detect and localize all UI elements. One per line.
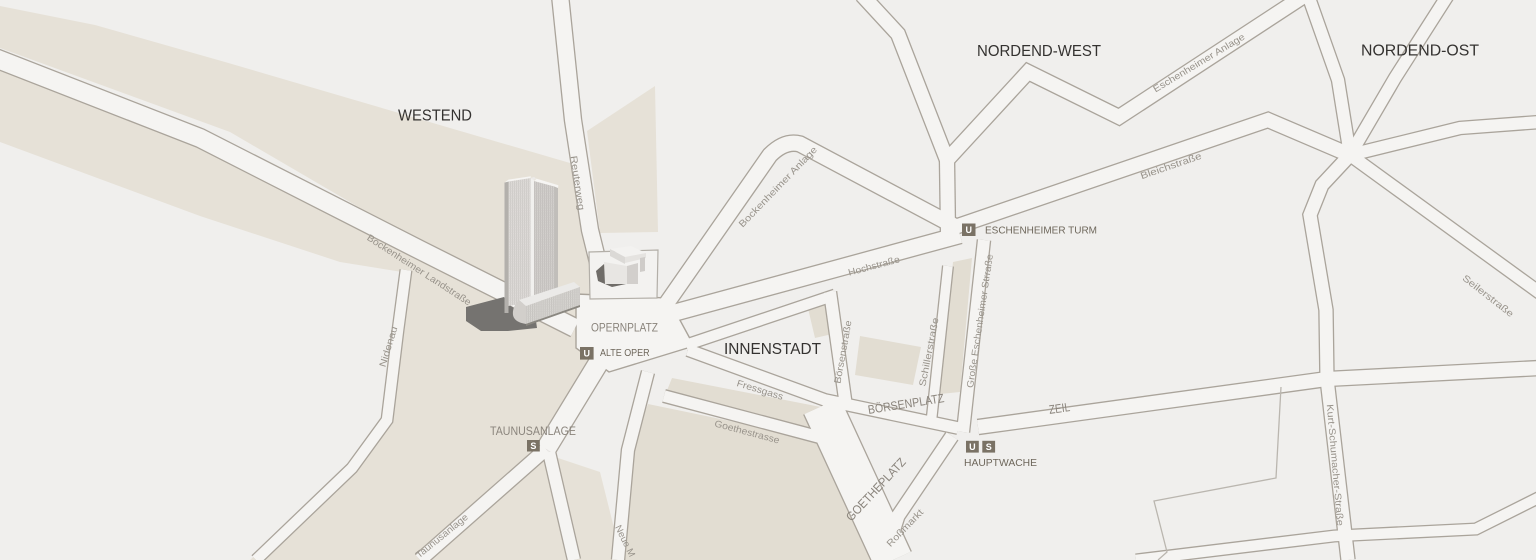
svg-text:U: U [969, 442, 976, 452]
svg-text:S: S [986, 442, 992, 452]
svg-text:U: U [965, 225, 972, 235]
svg-text:ZEIL: ZEIL [1048, 400, 1071, 417]
svg-text:OPERNPLATZ: OPERNPLATZ [591, 321, 658, 335]
svg-text:TAUNUSANLAGE: TAUNUSANLAGE [490, 424, 576, 438]
svg-text:NORDEND-WEST: NORDEND-WEST [977, 43, 1101, 60]
svg-text:S: S [530, 441, 536, 451]
svg-text:HAUPTWACHE: HAUPTWACHE [964, 458, 1037, 469]
svg-text:U: U [584, 349, 591, 359]
svg-text:ALTE OPER: ALTE OPER [600, 348, 650, 359]
svg-text:ESCHENHEIMER TURM: ESCHENHEIMER TURM [985, 226, 1097, 237]
svg-text:WESTEND: WESTEND [398, 108, 472, 125]
svg-text:INNENSTADT: INNENSTADT [724, 341, 821, 358]
svg-text:NORDEND-OST: NORDEND-OST [1361, 43, 1479, 60]
